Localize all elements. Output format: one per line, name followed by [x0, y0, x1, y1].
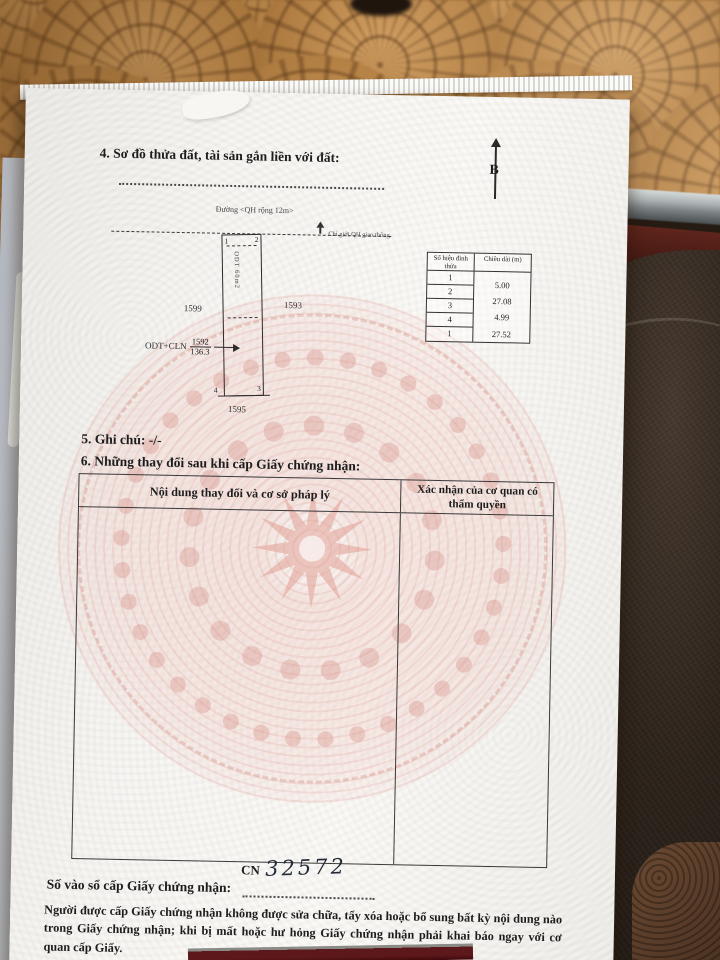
vertex-cell: 4 — [426, 313, 472, 328]
length-cell: 5.00 — [474, 277, 530, 294]
parcel-corner-1: 1 — [224, 236, 228, 245]
dotted-rule — [119, 180, 384, 190]
confirmation-col-header: Xác nhận của cơ quan có thẩm quyền — [401, 480, 553, 515]
certificate-page: 4. Sơ đồ thửa đất, tài sản gắn liền với … — [9, 88, 630, 960]
north-arrow-icon: B — [494, 141, 497, 199]
registry-number-handwritten: 32572 — [265, 855, 347, 881]
left-neighbor-parcel: 1599 — [184, 303, 202, 313]
vertex-cell: 3 — [427, 299, 473, 314]
confirmation-empty-cell — [394, 514, 552, 868]
north-label: B — [489, 163, 499, 179]
vertex-table: Số hiệu đỉnh thửa 1 2 3 4 1 Chiều dài (m… — [425, 252, 532, 344]
changes-table: Nội dung thay đổi và cơ sở pháp lý Xác n… — [71, 473, 554, 868]
length-cell: 27.08 — [474, 293, 530, 310]
pointer-arrow-icon — [214, 346, 238, 348]
length-column: Chiều dài (m) 5.00 27.08 4.99 27.52 — [473, 254, 531, 343]
land-use-label: ODT+CLN — [145, 341, 187, 352]
vertex-cell: 1 — [426, 327, 472, 341]
registry-dotted-leader — [243, 892, 375, 900]
changes-table-body — [72, 507, 553, 867]
leather-armrest — [632, 842, 720, 960]
length-col-header: Chiều dài (m) — [475, 254, 531, 273]
boundary-label: Chỉ giới QH giao thông — [328, 231, 390, 239]
changes-empty-cell — [72, 507, 401, 864]
parcel-inner-dashline — [228, 317, 258, 318]
vertex-col-header: Số hiệu đỉnh thửa — [428, 253, 474, 272]
length-values: 5.00 27.08 4.99 27.52 — [473, 272, 530, 343]
boundary-arrow-icon — [319, 223, 321, 234]
section6-heading: 6. Những thay đổi sau khi cấp Giấy chứng… — [81, 453, 361, 474]
vertex-cell: 2 — [427, 285, 473, 300]
photo-scene: 4. Sơ đồ thửa đất, tài sản gắn liền với … — [0, 0, 720, 960]
parcel-outline: ODT 60m2 1 2 3 4 — [221, 234, 264, 397]
parcel-number-area-fraction: 1592 136.3 — [189, 337, 210, 356]
bottom-neighbor-parcel: 1595 — [228, 404, 246, 414]
section5-note: 5. Ghi chú: -/- — [81, 431, 162, 449]
length-cell: 4.99 — [474, 309, 530, 326]
road-label: Đường <QH rộng 12m> — [216, 205, 294, 215]
length-cell: 27.52 — [473, 325, 529, 342]
handwritten-number: 32572 — [265, 854, 348, 881]
parcel-inner-dashline — [227, 245, 257, 246]
registry-prefix: CN — [241, 862, 260, 878]
parcel-inner-label: ODT 60m2 — [233, 251, 241, 289]
parcel-area: 136.3 — [189, 347, 210, 356]
right-neighbor-parcel: 1593 — [284, 300, 302, 310]
changes-col-header: Nội dung thay đổi và cơ sở pháp lý — [79, 474, 402, 512]
north-arrowhead-icon — [491, 133, 501, 147]
parcel-corner-4: 4 — [214, 386, 218, 395]
document-content: 4. Sơ đồ thửa đất, tài sản gắn liền với … — [9, 88, 630, 960]
registry-label: Số vào sổ cấp Giấy chứng nhận: — [47, 877, 232, 897]
parcel-corner-3: 3 — [257, 384, 261, 393]
section4-heading: 4. Sơ đồ thửa đất, tài sản gắn liền với … — [100, 145, 340, 166]
vertex-cell: 1 — [427, 271, 473, 286]
vertex-column: Số hiệu đỉnh thửa 1 2 3 4 1 — [426, 253, 475, 342]
parcel-bottom-extension — [218, 395, 270, 397]
parcel-corner-2: 2 — [255, 235, 259, 244]
parcel-use-annotation: ODT+CLN 1592 136.3 — [145, 336, 238, 357]
